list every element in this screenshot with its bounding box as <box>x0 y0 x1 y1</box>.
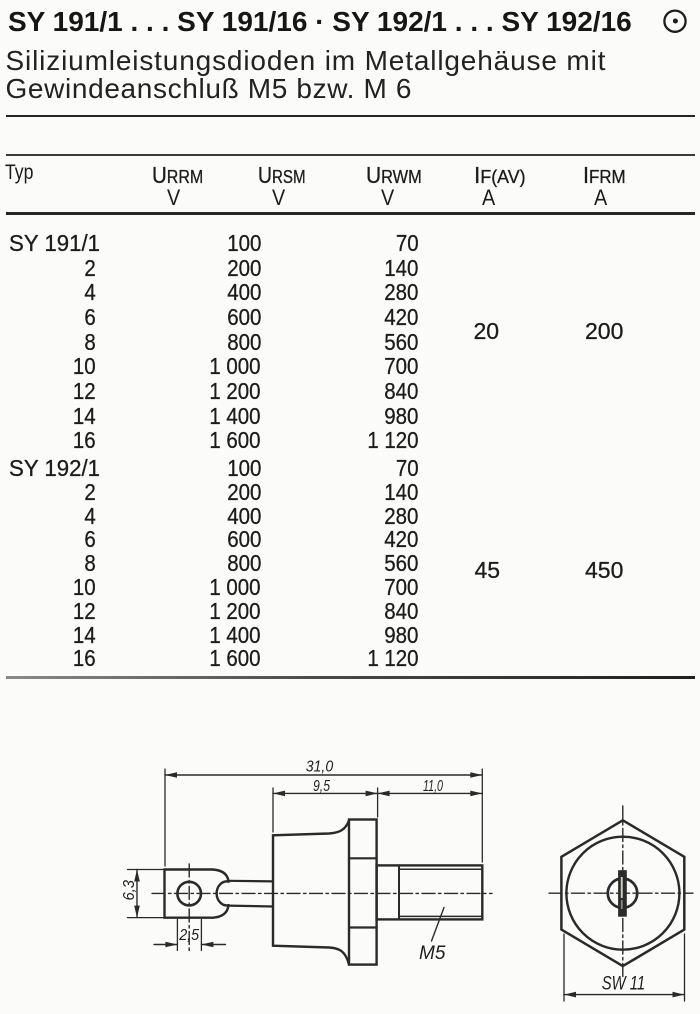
svg-text:9,5: 9,5 <box>313 778 330 795</box>
svg-text:11,0: 11,0 <box>423 778 443 795</box>
svg-text:31,0: 31,0 <box>306 759 334 776</box>
svg-text:6,3: 6,3 <box>121 880 138 901</box>
svg-text:SW 11: SW 11 <box>602 974 646 995</box>
svg-text:M5: M5 <box>419 943 446 964</box>
svg-text:2,5: 2,5 <box>178 927 199 944</box>
